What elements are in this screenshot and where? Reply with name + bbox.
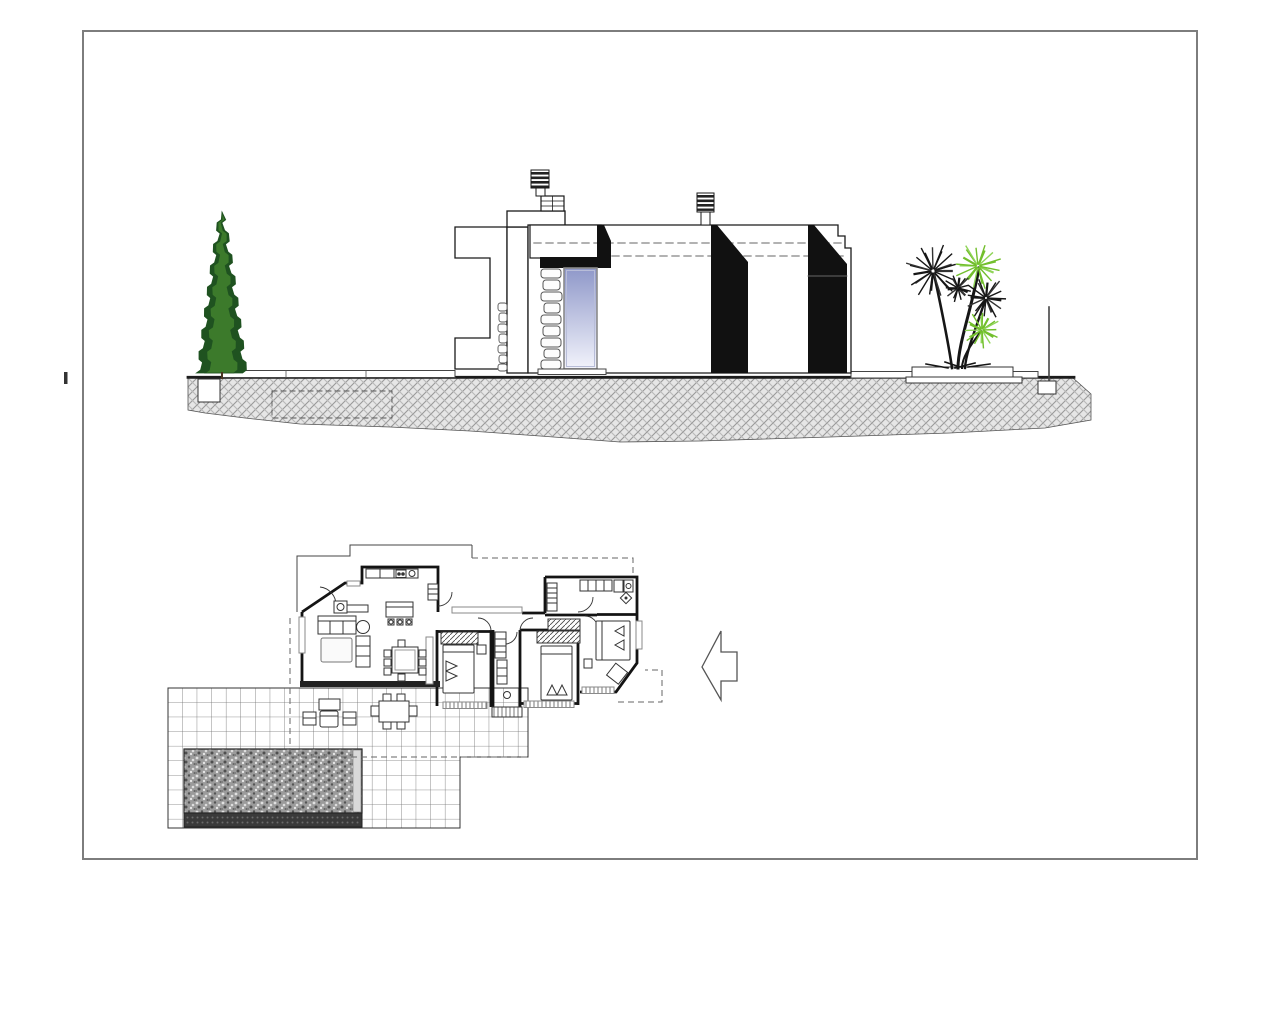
chimney-wall [507,227,528,373]
swimming-pool [184,749,362,813]
margin-tick [64,372,68,384]
window-lintel [540,257,611,268]
tree-foundation [198,379,220,402]
window-sill [538,369,606,375]
pool-overflow-edge [353,750,361,812]
palm-planter-base [906,377,1022,383]
wardrobe-master [548,619,580,630]
living-glass-wall [300,681,440,687]
roof-fascia-band [530,225,601,258]
glass-window [564,268,597,369]
stone-pillar [541,269,562,369]
pool-dark-border [184,813,362,827]
wardrobe-bedroom-a [441,632,478,644]
bed-bedroom-b [541,646,572,700]
drawing-sheet [0,0,1280,1024]
wardrobe-bedroom-b [537,631,580,643]
drawing-canvas [0,0,1280,1024]
chimney-cap-box [541,196,564,211]
terrace-slab-left [222,371,455,378]
